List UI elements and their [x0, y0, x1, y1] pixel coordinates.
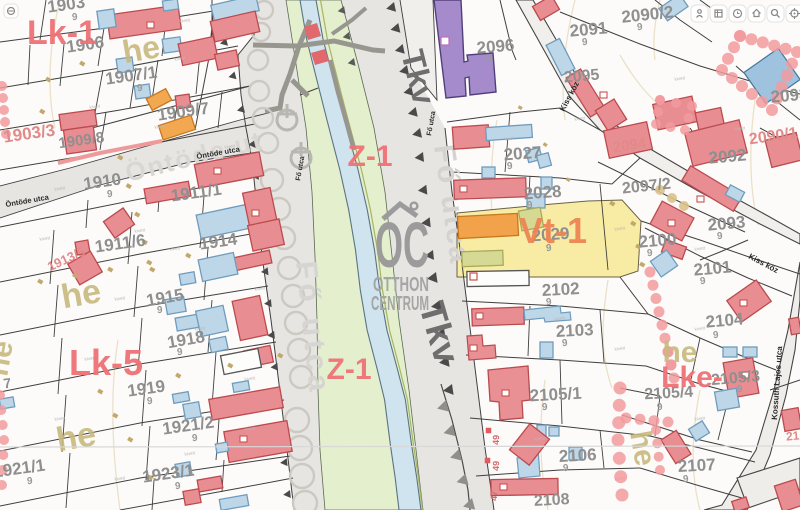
svg-text:2091: 2091	[569, 18, 608, 40]
svg-text:2095: 2095	[563, 66, 600, 86]
svg-text:49: 49	[491, 461, 501, 471]
svg-text:Z-1: Z-1	[327, 353, 372, 386]
svg-text:Lk-5: Lk-5	[69, 342, 143, 383]
svg-text:he: he	[58, 272, 104, 316]
svg-text:47: 47	[489, 491, 499, 501]
svg-text:he: he	[120, 28, 163, 70]
svg-text:2105/1: 2105/1	[529, 384, 582, 406]
svg-text:Z-1: Z-1	[348, 140, 393, 173]
svg-text:Lk-1: Lk-1	[27, 14, 97, 52]
svg-text:CENTRUM: CENTRUM	[371, 293, 429, 315]
svg-text:49: 49	[491, 435, 501, 445]
svg-text:2092: 2092	[708, 145, 747, 167]
svg-text:OC: OC	[375, 209, 429, 281]
svg-text:2093: 2093	[707, 212, 746, 234]
svg-text:he: he	[623, 428, 662, 468]
svg-text:21: 21	[785, 428, 800, 443]
svg-text:Vt-1: Vt-1	[519, 210, 587, 251]
svg-text:2104: 2104	[705, 309, 745, 331]
svg-text:2108: 2108	[534, 491, 571, 510]
svg-text:2093: 2093	[770, 84, 800, 106]
svg-text:2096: 2096	[476, 35, 515, 57]
svg-text:2107: 2107	[677, 455, 716, 476]
svg-text:he: he	[53, 415, 99, 459]
svg-text:he: he	[662, 336, 697, 369]
svg-text:2100: 2100	[638, 229, 677, 251]
